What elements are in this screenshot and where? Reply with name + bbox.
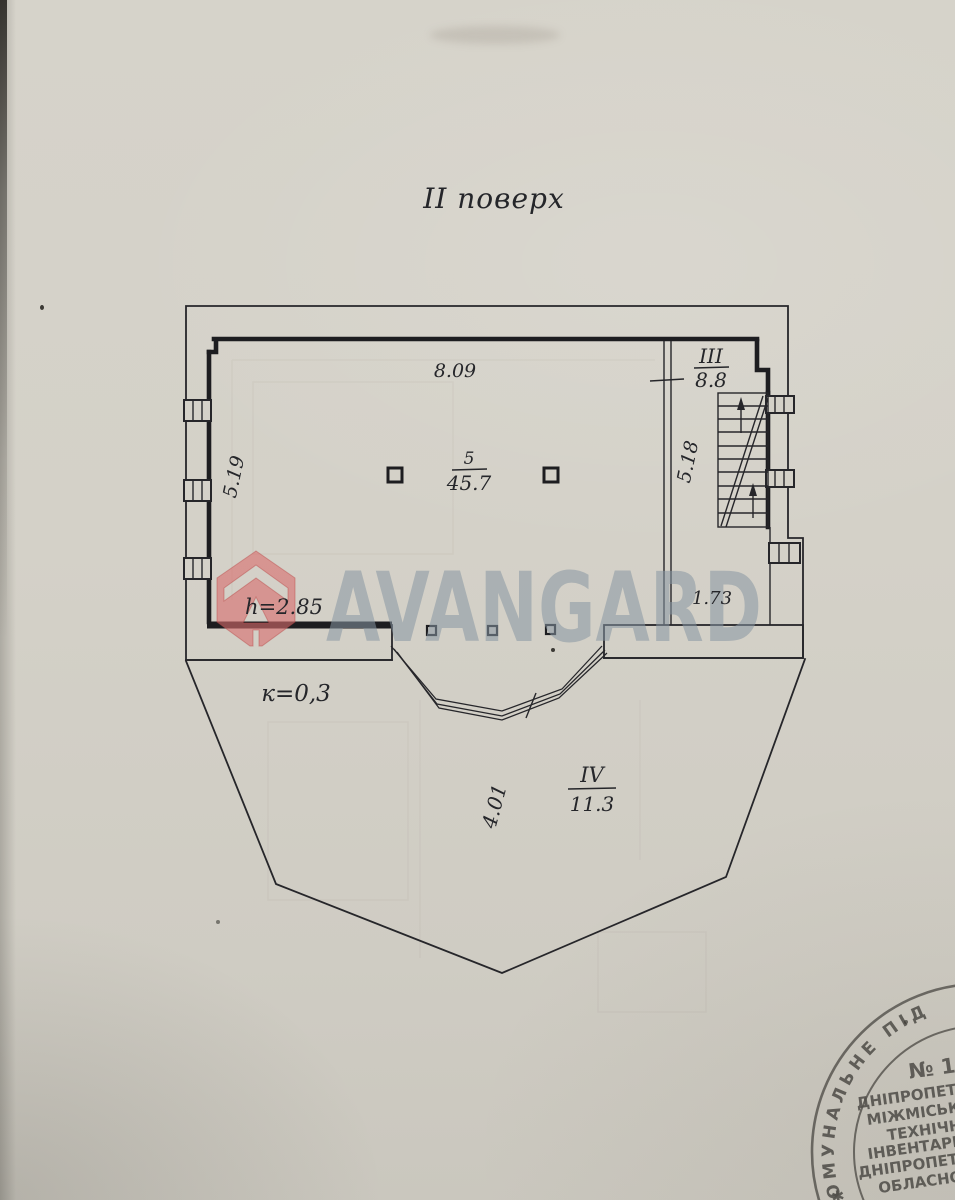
stair-room-right-wall [757,341,768,393]
terrace-room-area: 11.3 [570,792,615,816]
dim-terrace-depth: 4.01 [477,782,512,832]
dim-hall-height: 5.18 [673,439,703,485]
stair-stringer [721,396,768,527]
window-right-2 [766,470,794,487]
stamp-asterisk: ✱ [830,1186,846,1200]
paper-smudge [430,26,560,44]
paper-speck-4 [904,1020,908,1024]
terrace-room-label: IV 11.3 [568,763,616,816]
window-left-2 [184,480,211,501]
stair-direction-arrow-up [737,397,745,433]
dim-hall-width: 1.73 [692,588,732,609]
floor-plan-drawing: ІІ поверх [0,0,955,1200]
stair-room-area: 8.8 [695,368,727,392]
coefficient-note: к=0,3 [261,681,331,707]
window-right-1 [766,396,794,413]
stair-room-label: III 8.8 [694,344,729,392]
window-left-3 [184,558,211,579]
dim-top-width: 8.09 [434,360,476,382]
paper-speck-2 [551,648,555,652]
window-right-3 [769,543,800,563]
paper-speck-1 [40,305,44,310]
column-room5-right [544,468,558,482]
stair-room-number: III [698,344,724,368]
photo-left-edge-dark [0,0,7,640]
page-title: ІІ поверх [422,182,565,215]
stamp-number: № 18 [907,1051,955,1083]
paper-speck-3 [216,920,220,924]
column-room5-left [388,468,402,482]
terrace-room-number: IV [579,763,605,787]
bti-stamp: КОМУНАЛЬНЕ ПІД № 18 ДНІПРОПЕТРОВ МІЖМІСЬ… [812,984,955,1200]
dim-left-height: 5.19 [219,454,249,500]
room5-area: 45.7 [446,471,492,495]
ceiling-height-note: h=2.85 [245,595,323,619]
railing-tick [526,693,536,718]
room5-number: 5 [464,449,475,469]
photographed-floor-plan-page: ІІ поверх [0,0,955,1200]
partition-door-tick [650,379,684,381]
window-left-1 [184,400,211,421]
staircase [718,393,768,527]
